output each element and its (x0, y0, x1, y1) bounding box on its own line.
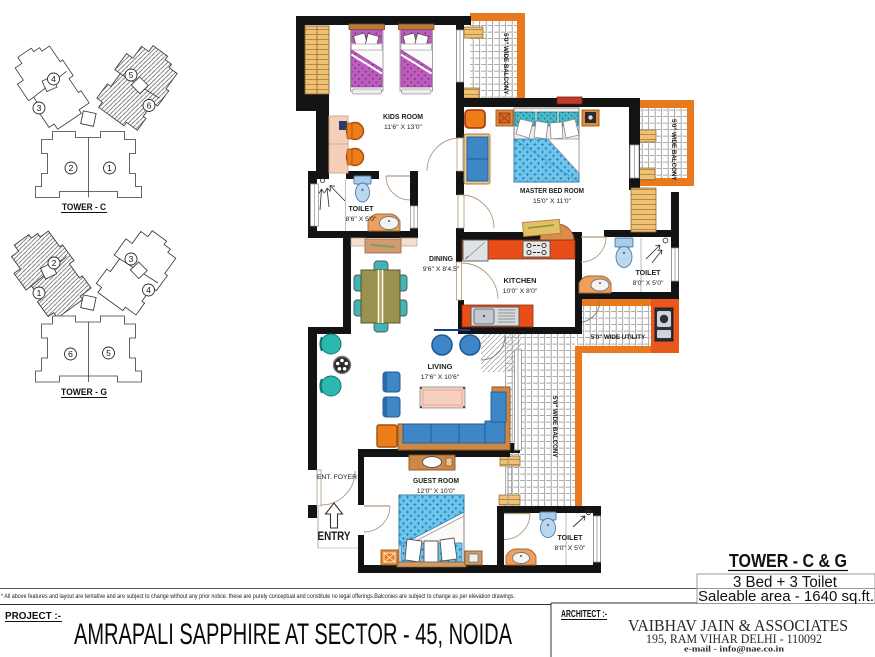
svg-text:* All above features and layou: * All above features and layout are tent… (1, 593, 515, 600)
svg-text:5'0" WIDE UTILITY: 5'0" WIDE UTILITY (591, 334, 646, 341)
svg-text:17'6" X 10'6": 17'6" X 10'6" (421, 374, 460, 381)
svg-text:ENT. FOYER: ENT. FOYER (317, 474, 357, 481)
svg-text:MASTER BED ROOM: MASTER BED ROOM (520, 186, 584, 195)
svg-text:TOWER - G: TOWER - G (61, 387, 107, 398)
svg-text:15'0" X 11'0": 15'0" X 11'0" (533, 198, 571, 205)
svg-text:10'0" X 8'0": 10'0" X 8'0" (503, 288, 538, 295)
svg-text:LIVING: LIVING (428, 362, 453, 371)
svg-text:DINING: DINING (429, 254, 453, 263)
svg-text:4: 4 (146, 285, 151, 295)
svg-text:11'6" X 13'0": 11'6" X 13'0" (384, 124, 422, 131)
svg-text:TOILET: TOILET (349, 204, 374, 213)
svg-text:ENTRY: ENTRY (318, 529, 351, 543)
svg-text:ARCHITECT :-: ARCHITECT :- (561, 609, 607, 620)
svg-text:5: 5 (106, 348, 111, 358)
svg-text:8'0" X 5'0": 8'0" X 5'0" (555, 545, 586, 552)
svg-text:KITCHEN: KITCHEN (504, 276, 537, 285)
svg-text:TOILET: TOILET (558, 533, 583, 542)
svg-text:9'6" X 8'4.5": 9'6" X 8'4.5" (423, 266, 460, 273)
svg-text:1: 1 (107, 163, 112, 173)
svg-text:2: 2 (52, 258, 57, 268)
svg-text:TOILET: TOILET (636, 268, 661, 277)
svg-text:8'0" X 5'0": 8'0" X 5'0" (633, 280, 664, 287)
svg-text:4: 4 (51, 74, 56, 84)
svg-text:12'0" X 10'0": 12'0" X 10'0" (417, 488, 456, 495)
svg-text:3: 3 (37, 103, 42, 113)
svg-text:6: 6 (147, 101, 152, 111)
svg-text:5: 5 (129, 70, 134, 80)
svg-text:TOWER - C: TOWER - C (62, 202, 106, 213)
svg-text:GUEST ROOM: GUEST ROOM (413, 476, 459, 485)
svg-text:Saleable area - 1640 sq.ft.: Saleable area - 1640 sq.ft. (698, 588, 874, 605)
svg-text:6: 6 (68, 349, 73, 359)
svg-text:2: 2 (69, 163, 74, 173)
svg-text:5'0" WIDE BALCONY: 5'0" WIDE BALCONY (670, 119, 677, 181)
svg-text:TOWER - C & G: TOWER - C & G (729, 551, 847, 571)
svg-text:8'6" X 5'0": 8'6" X 5'0" (346, 216, 377, 223)
svg-text:PROJECT :-: PROJECT :- (5, 611, 61, 622)
svg-text:5'0" WIDE BALCONY: 5'0" WIDE BALCONY (551, 396, 558, 458)
svg-text:3: 3 (129, 254, 134, 264)
svg-text:1: 1 (37, 288, 42, 298)
svg-text:5'0" WIDE BALCONY: 5'0" WIDE BALCONY (502, 33, 509, 95)
svg-text:e-mail - info@nae.co.in: e-mail - info@nae.co.in (684, 644, 784, 654)
svg-text:KIDS ROOM: KIDS ROOM (383, 112, 423, 121)
svg-text:AMRAPALI SAPPHIRE AT SECTOR -: AMRAPALI SAPPHIRE AT SECTOR - 45, NOIDA (74, 618, 512, 651)
